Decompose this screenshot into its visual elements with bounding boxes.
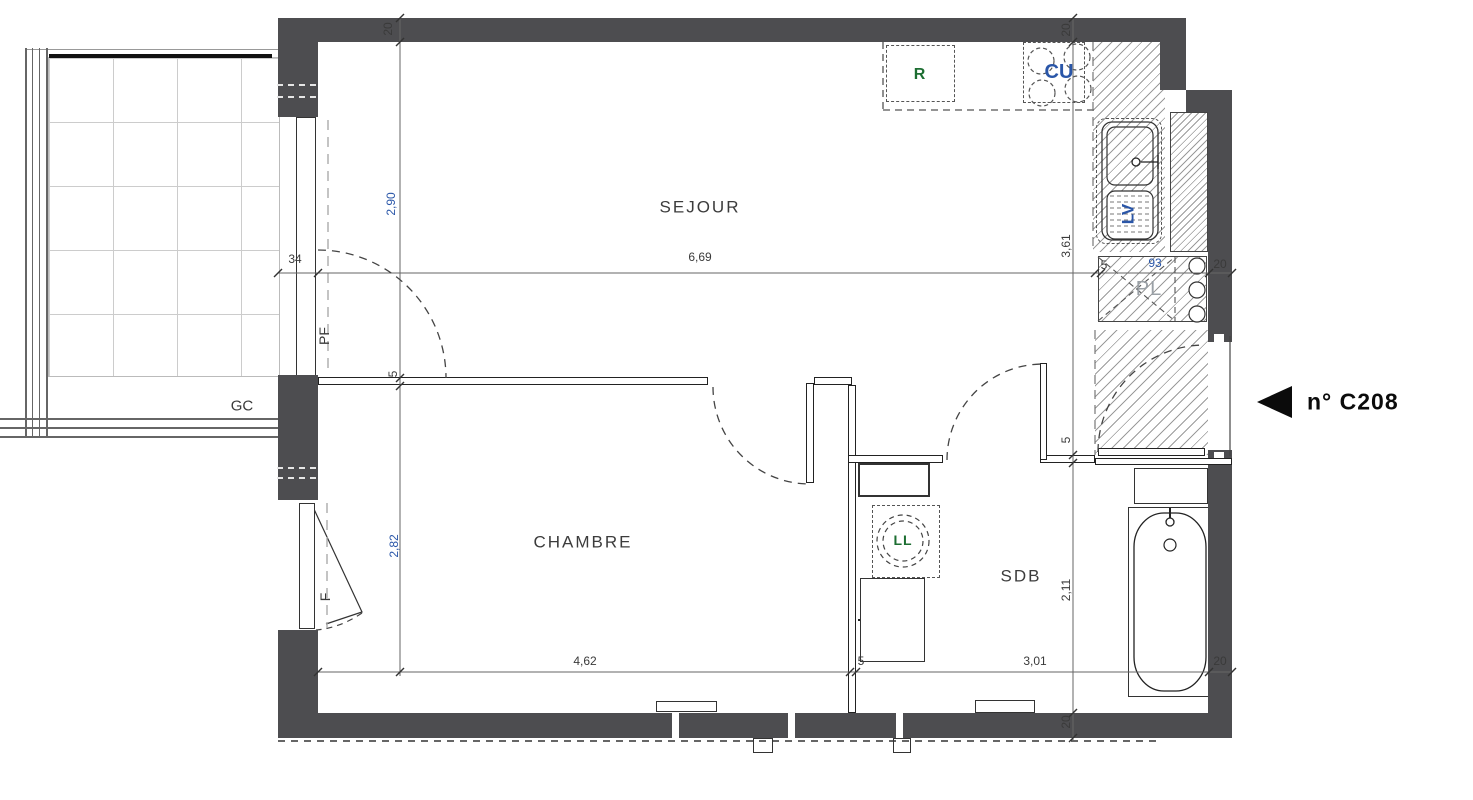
pf-door-arc — [318, 250, 446, 378]
label-d-462: 4,62 — [573, 655, 596, 667]
label-sdb: SDB — [1001, 568, 1042, 585]
label-d-20-pl: 20 — [1213, 258, 1226, 270]
label-d-669: 6,69 — [688, 251, 711, 263]
label-pl: PL — [1136, 279, 1162, 299]
label-f: F — [318, 593, 332, 602]
label-d-301: 3,01 — [1023, 655, 1046, 667]
label-d-20-br: 20 — [1213, 655, 1226, 667]
label-d-5-sdb: 5 — [858, 655, 865, 667]
label-cu: CU — [1045, 62, 1074, 82]
sdb-door-arc — [947, 364, 1043, 460]
label-d-5-ent: 5 — [1060, 437, 1072, 444]
unit-arrow-icon — [1257, 386, 1292, 418]
chambre-door-arc — [713, 387, 810, 484]
label-lv: LV — [1120, 204, 1137, 224]
label-d-5-sej: 5 — [387, 371, 399, 378]
dimensions-and-doors — [0, 0, 1473, 800]
label-d-20-tr: 20 — [1060, 23, 1072, 36]
floor-plan: SEJOURCHAMBRESDBRCULVPLLLGCPFFn° C208202… — [0, 0, 1473, 800]
label-d-5-pl: 5 — [1101, 259, 1108, 271]
entry-door-arc — [1098, 345, 1205, 452]
label-d-20-tl: 20 — [382, 22, 394, 35]
label-d-282: 2,82 — [388, 534, 400, 557]
label-d-361: 3,61 — [1060, 234, 1072, 257]
label-d-211: 2,11 — [1060, 579, 1072, 601]
label-r: R — [914, 67, 927, 83]
label-d-290: 2,90 — [385, 192, 397, 215]
label-chambre: CHAMBRE — [533, 534, 632, 551]
label-d-93: 93 — [1148, 257, 1161, 269]
label-d-20-bot: 20 — [1060, 715, 1072, 728]
label-sejour: SEJOUR — [660, 199, 741, 216]
label-c208: n° C208 — [1307, 391, 1399, 414]
label-d-34: 34 — [288, 253, 301, 265]
label-ll: LL — [893, 533, 912, 547]
label-pf: PF — [317, 327, 331, 345]
label-gc: GC — [231, 399, 254, 414]
